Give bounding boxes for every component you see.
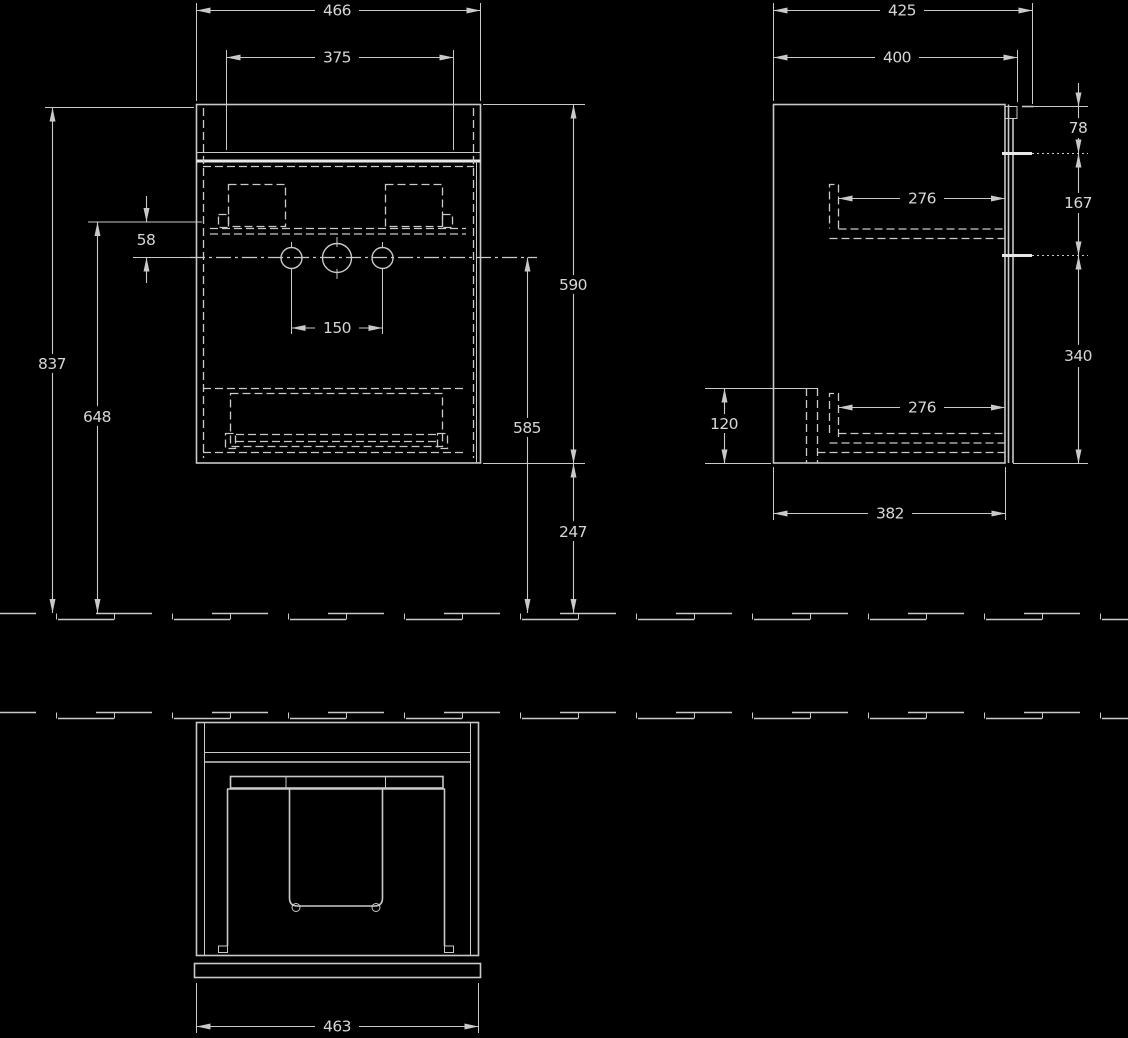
front-view-carcass: [197, 105, 481, 464]
dimension-382-label: 382: [876, 505, 904, 523]
dimension-276-top-label: 276: [908, 190, 936, 208]
dimension-chain-78-167-340: 78 167 340: [1013, 83, 1092, 464]
dimension-167-label: 167: [1064, 194, 1092, 212]
plan-view-front-edge: [195, 964, 481, 978]
siphon-foot-right: [372, 904, 380, 912]
dimension-375-label: 375: [323, 49, 351, 67]
front-view: 466 375 837 648 58: [38, 2, 587, 614]
side-view: 425 400 78 167 340 276: [705, 2, 1092, 523]
plan-view-carcass: [197, 723, 479, 956]
front-view-tap-holes: [190, 237, 537, 279]
dimension-590: 590: [483, 105, 587, 464]
siphon-foot-left: [292, 904, 300, 912]
dimension-585: 585: [513, 258, 541, 614]
floor-break-line-upper: [0, 614, 1128, 620]
dimension-463: 463: [197, 983, 479, 1036]
dimension-247: 247: [559, 464, 587, 614]
front-view-bottom-drawer: [203, 389, 467, 453]
plan-view: 463: [195, 723, 481, 1036]
dimension-247-label: 247: [559, 523, 587, 541]
plan-view-drawer-front: [219, 777, 454, 953]
dimension-400-label: 400: [883, 49, 911, 67]
dimension-120: 120: [705, 389, 818, 464]
dimension-150: 150: [292, 270, 383, 337]
technical-drawing: 466 375 837 648 58: [0, 0, 1128, 1038]
dimension-590-label: 590: [559, 276, 587, 294]
floor-break-line-lower: [0, 713, 1128, 719]
front-view-drawer-runners: [210, 185, 466, 235]
side-view-carcass: [774, 105, 1034, 464]
dimension-837: 837: [38, 108, 194, 614]
dimension-78-label: 78: [1069, 119, 1088, 137]
dimension-585-label: 585: [513, 419, 541, 437]
side-view-lower-runner: [807, 388, 1006, 463]
plan-view-basin-cutout: [290, 789, 383, 912]
dimension-276-bottom: 276: [839, 399, 1006, 417]
dimension-150-label: 150: [323, 319, 351, 337]
drawing-canvas: 466 375 837 648 58: [0, 0, 1128, 1038]
dimension-382: 382: [774, 467, 1006, 523]
dimension-58: 58: [133, 196, 196, 283]
dimension-276-top: 276: [839, 190, 1006, 208]
dimension-648-label: 648: [83, 408, 111, 426]
dimension-400: 400: [774, 49, 1018, 103]
dimension-466-label: 466: [323, 2, 351, 20]
dimension-648: 648: [83, 222, 202, 613]
dimension-276-bottom-label: 276: [908, 399, 936, 417]
dimension-463-label: 463: [323, 1018, 351, 1036]
dimension-58-label: 58: [137, 231, 156, 249]
dimension-375: 375: [227, 49, 454, 151]
dimension-425-label: 425: [888, 2, 916, 20]
dimension-837-label: 837: [38, 355, 66, 373]
dimension-120-label: 120: [710, 415, 738, 433]
dimension-340-label: 340: [1064, 347, 1092, 365]
